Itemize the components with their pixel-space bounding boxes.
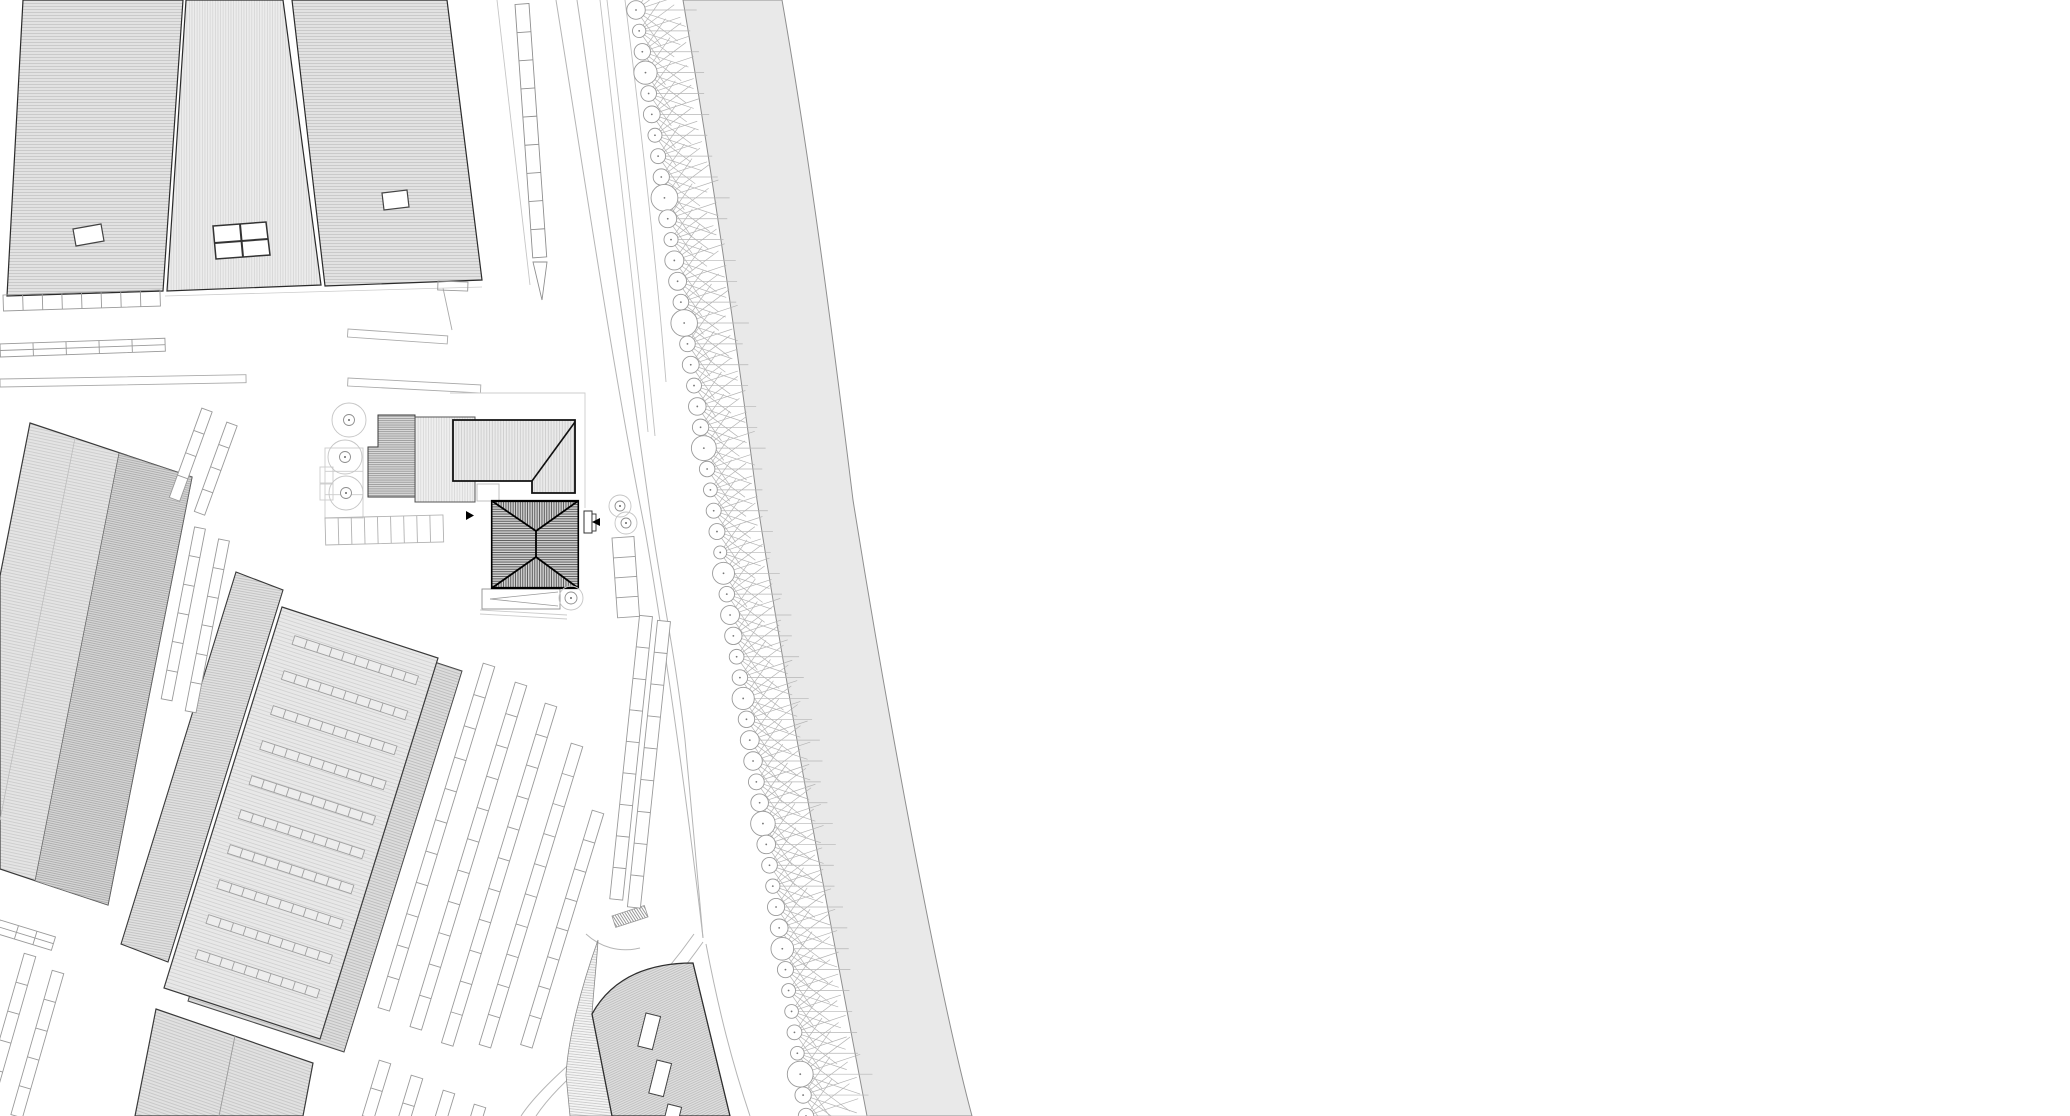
timber-stack-south-1 [362,1060,390,1116]
yard-tree-ramp [559,586,583,610]
timber-stack-corner-strip [0,920,55,950]
path-strip-north-upper [347,329,447,344]
timber-stack-south-4 [460,1104,486,1116]
path-strip-north-lower [348,378,481,393]
hall-connector [477,484,499,501]
timber-stack-south-3 [426,1090,454,1116]
section-arrow-west [466,511,474,520]
yard-boundary-south-2 [480,614,567,619]
rail-spur-line [443,288,452,330]
stair-flight-east [612,536,640,617]
yard-boundary-south-1 [480,610,567,615]
planter-box-2 [320,484,333,500]
parking-stalls [325,515,444,545]
courtyard-tree-3 [329,476,363,510]
site-plan-canvas [0,0,2070,1116]
road-fork-connector [586,934,640,950]
courtyard-tree-2 [328,440,362,474]
site-plan-drawing [0,0,2070,1116]
warehouse-roof-c [292,0,482,286]
timber-stack-south-2 [394,1075,422,1116]
skylight-warehouse-c [382,190,409,210]
loading-dock-c [438,281,468,291]
warehouse-roof-a [7,0,183,296]
loading-dock-east [584,511,592,533]
crosswalk-strip [612,905,648,927]
workshop-block-west [368,415,415,497]
planter-box-1 [320,467,333,483]
path-strip-west [0,375,246,387]
conveyor-taper [533,262,547,300]
conveyor-gantry [515,4,547,258]
courtyard-tree-1 [332,403,366,437]
platform-strip-west [0,338,165,357]
